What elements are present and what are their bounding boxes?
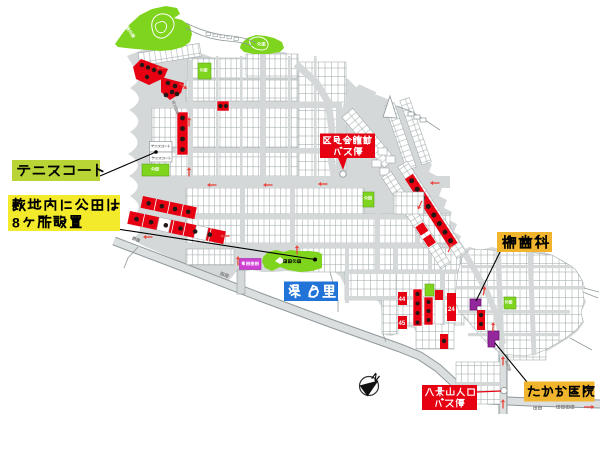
svg-text:24: 24 <box>448 307 455 313</box>
svg-text:44: 44 <box>399 297 406 303</box>
svg-text:45: 45 <box>399 321 406 327</box>
svg-text:8: 8 <box>12 214 20 230</box>
